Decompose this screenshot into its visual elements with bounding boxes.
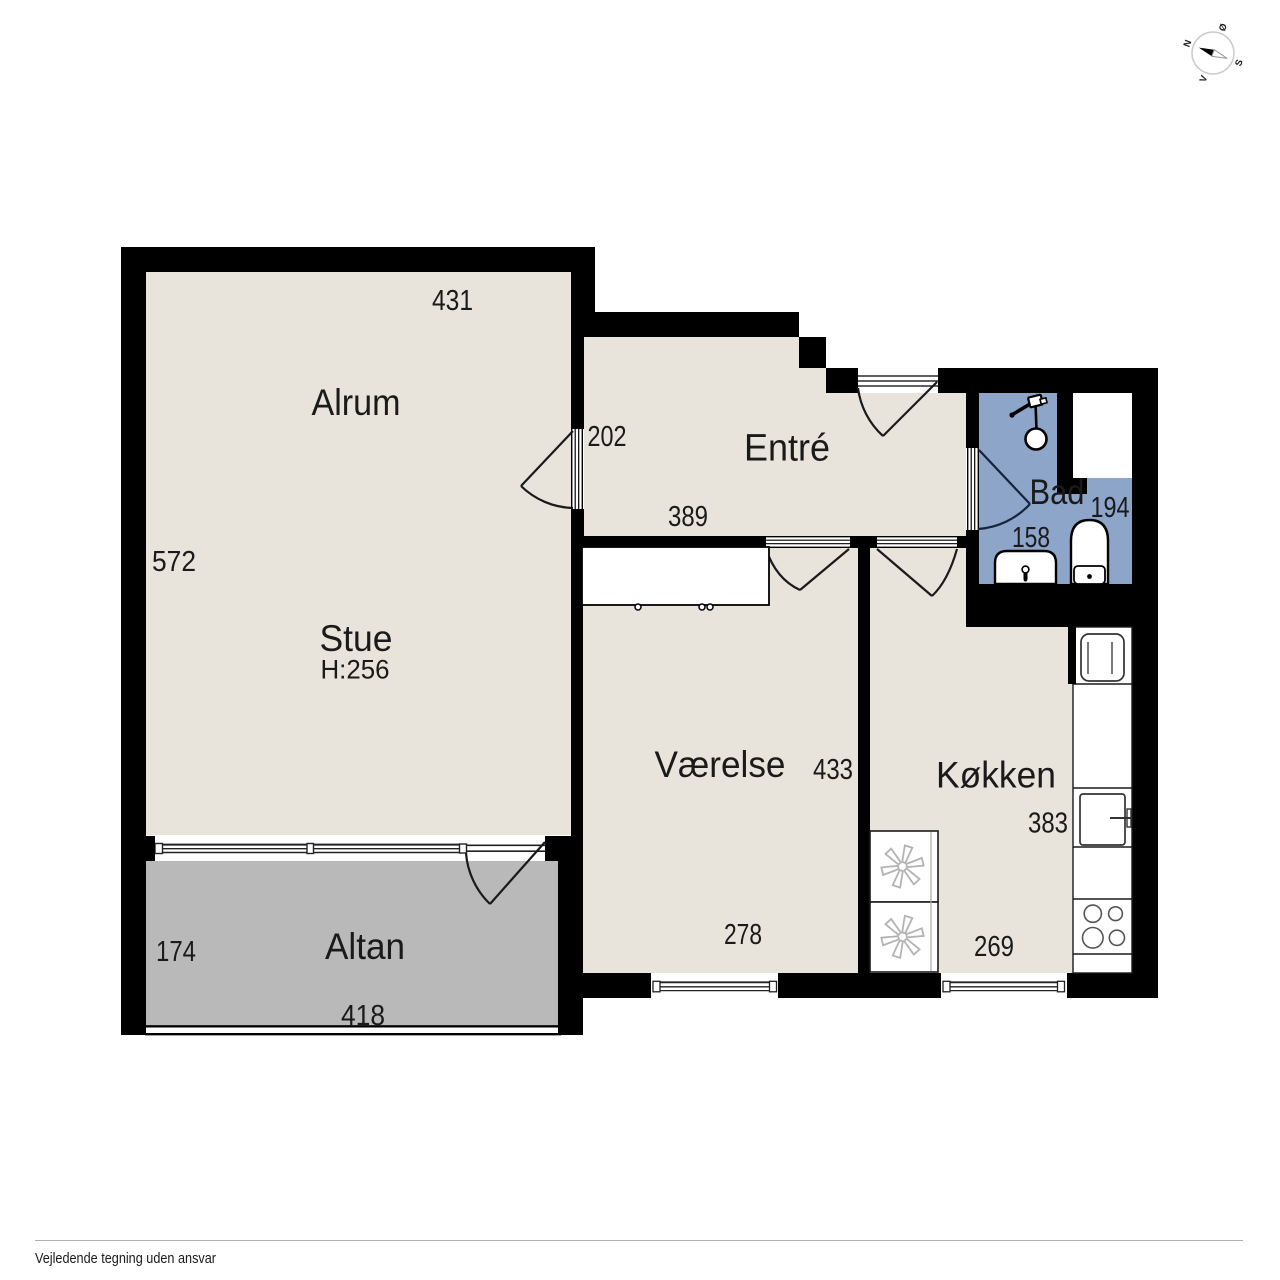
- svg-text:Altan: Altan: [325, 926, 405, 967]
- svg-text:572: 572: [152, 546, 196, 578]
- svg-text:Stue: Stue: [320, 618, 393, 659]
- svg-text:Bad: Bad: [1030, 473, 1085, 512]
- svg-text:389: 389: [668, 501, 708, 533]
- svg-text:Alrum: Alrum: [312, 382, 401, 423]
- svg-text:Vejledende tegning uden ansvar: Vejledende tegning uden ansvar: [35, 1250, 216, 1267]
- svg-text:194: 194: [1091, 492, 1130, 524]
- svg-text:431: 431: [432, 285, 473, 317]
- svg-text:174: 174: [156, 936, 196, 968]
- svg-text:H:256: H:256: [321, 655, 390, 685]
- svg-text:433: 433: [813, 754, 853, 786]
- svg-text:278: 278: [724, 919, 762, 951]
- svg-text:Værelse: Værelse: [655, 744, 786, 785]
- svg-text:418: 418: [341, 1000, 385, 1032]
- svg-text:202: 202: [588, 421, 627, 453]
- svg-text:Køkken: Køkken: [936, 755, 1056, 796]
- svg-text:383: 383: [1028, 808, 1068, 840]
- svg-text:Entré: Entré: [744, 428, 830, 470]
- svg-text:158: 158: [1012, 522, 1050, 554]
- svg-text:269: 269: [974, 931, 1014, 963]
